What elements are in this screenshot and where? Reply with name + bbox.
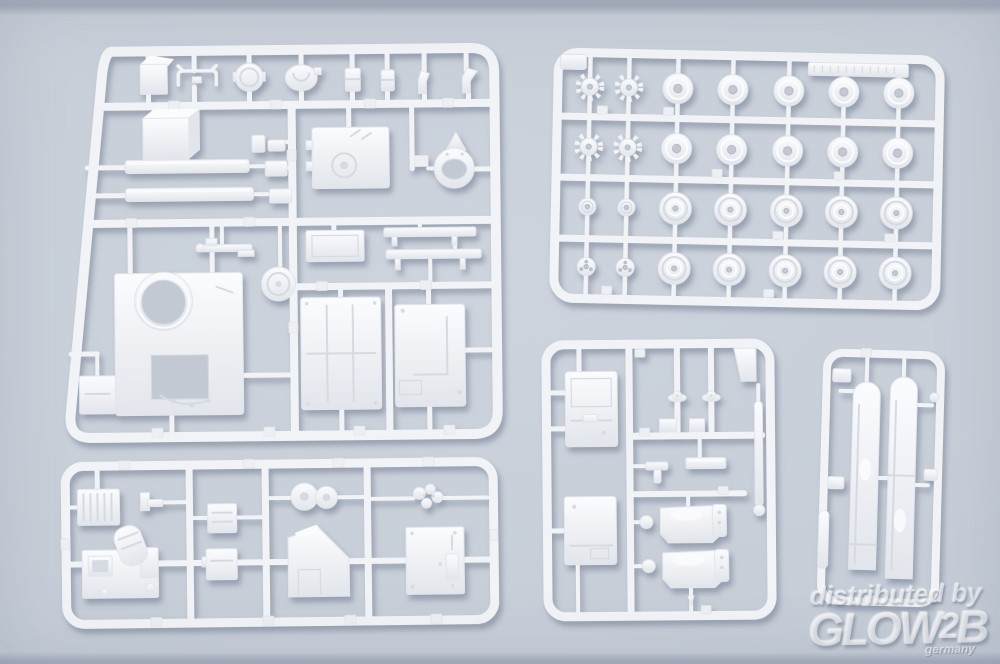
tow-ring-part <box>434 132 475 188</box>
sprue-hull-parts <box>67 48 498 438</box>
stowage-box-lower-part <box>202 549 237 580</box>
wing-nut-parts <box>668 391 720 402</box>
fuel-tank-lower-part <box>663 549 729 606</box>
sprue-tools <box>60 456 499 627</box>
stowage-cube-part <box>143 109 201 160</box>
fender-left-part <box>848 382 880 570</box>
sprue-road-wheels <box>553 52 940 306</box>
rod-part <box>753 401 765 516</box>
fuel-tank-upper-part <box>660 504 726 543</box>
deck-panel-left-part <box>301 297 382 410</box>
hatch-door-upper-part <box>565 371 618 446</box>
tapered-plate-part <box>734 348 756 381</box>
angled-plate-part <box>288 524 350 597</box>
sprue-small-parts <box>546 343 772 617</box>
product-photo: distributed by GLOW2B germany <box>0 0 1000 664</box>
small-box-part <box>140 55 174 94</box>
upper-hull-plate-part <box>114 271 243 415</box>
small-block-parts <box>659 419 704 432</box>
sprocket-cluster-part <box>413 484 443 508</box>
molded-text-strip <box>808 62 908 77</box>
bar-part <box>686 457 726 468</box>
knob-parts <box>640 516 655 573</box>
turret-ring-disc-part <box>261 267 295 301</box>
hatch-door-lower-part <box>564 496 617 564</box>
bracket-parts <box>345 68 394 92</box>
deck-panel-right-part <box>395 304 466 407</box>
sprues-scene <box>0 0 1000 664</box>
hull-panel-part <box>406 527 465 595</box>
corner-plate-part <box>79 376 115 414</box>
tow-hook-parts <box>418 68 477 94</box>
sprue-fenders <box>817 347 942 605</box>
engine-assembly-part <box>82 522 159 599</box>
engine-hatch-part <box>306 127 390 189</box>
t-bracket-part <box>646 462 668 483</box>
round-hatch-part <box>233 63 265 91</box>
access-panel-part <box>306 230 364 262</box>
radiator-grille-part <box>77 489 119 526</box>
tool-rack-parts <box>384 227 481 270</box>
bracket-part <box>140 492 162 510</box>
oval-hatch-part <box>285 65 321 91</box>
machine-gun-part <box>196 238 254 257</box>
barrel-half-parts <box>125 159 291 205</box>
stowage-box-upper-part <box>207 504 236 533</box>
pulley-pair-part <box>291 483 338 511</box>
fender-right-part <box>885 377 918 579</box>
clip-parts <box>252 135 285 152</box>
grab-handle-part <box>178 66 216 85</box>
